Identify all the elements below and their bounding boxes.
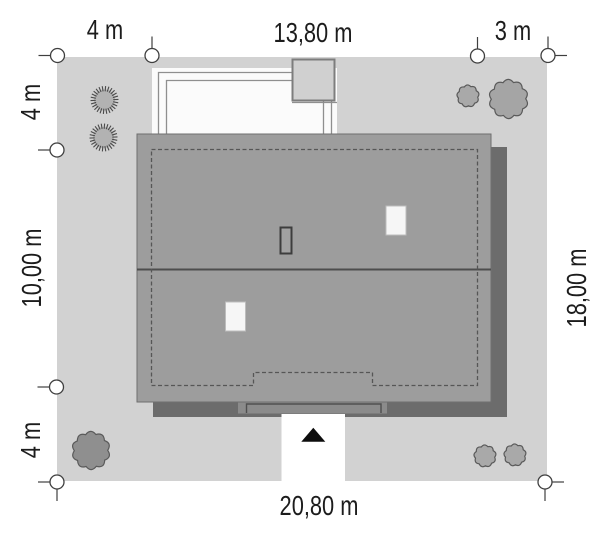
- dimension-marker: [471, 37, 485, 63]
- dim-label-left-middle: 10,00 m: [18, 229, 46, 308]
- dim-label-left-lower: 4 m: [17, 422, 45, 458]
- dimension-marker: [38, 143, 64, 157]
- dim-label-right: 18,00 m: [563, 249, 591, 328]
- dimension-marker: [39, 49, 65, 63]
- deciduous-tree-icon: [474, 445, 496, 467]
- dimension-marker: [145, 37, 159, 63]
- garden-shed: [293, 60, 335, 101]
- site-plan: 4 m 13,80 m 3 m 4 m 10,00 m 4 m 18,00 m …: [0, 0, 601, 538]
- dim-label-top-left: 4 m: [87, 16, 123, 44]
- roof-skylight: [386, 206, 406, 235]
- roof-skylight: [226, 302, 246, 331]
- dim-label-bottom: 20,80 m: [280, 492, 359, 520]
- dim-label-top-center: 13,80 m: [274, 19, 353, 47]
- chimney: [281, 228, 292, 254]
- dimension-marker: [538, 475, 564, 501]
- entrance-walkway: [282, 414, 346, 482]
- site-plan-drawing: [0, 0, 601, 538]
- deciduous-tree-icon: [73, 431, 110, 469]
- deciduous-tree-icon: [504, 444, 526, 466]
- dim-label-left-upper: 4 m: [17, 84, 45, 120]
- main-roof: [137, 134, 491, 402]
- dimension-marker: [38, 475, 64, 501]
- dimension-marker: [541, 37, 567, 63]
- dim-label-top-right: 3 m: [495, 17, 531, 45]
- deciduous-tree-icon: [457, 85, 479, 107]
- deciduous-tree-icon: [490, 79, 528, 118]
- dimension-marker: [38, 380, 64, 394]
